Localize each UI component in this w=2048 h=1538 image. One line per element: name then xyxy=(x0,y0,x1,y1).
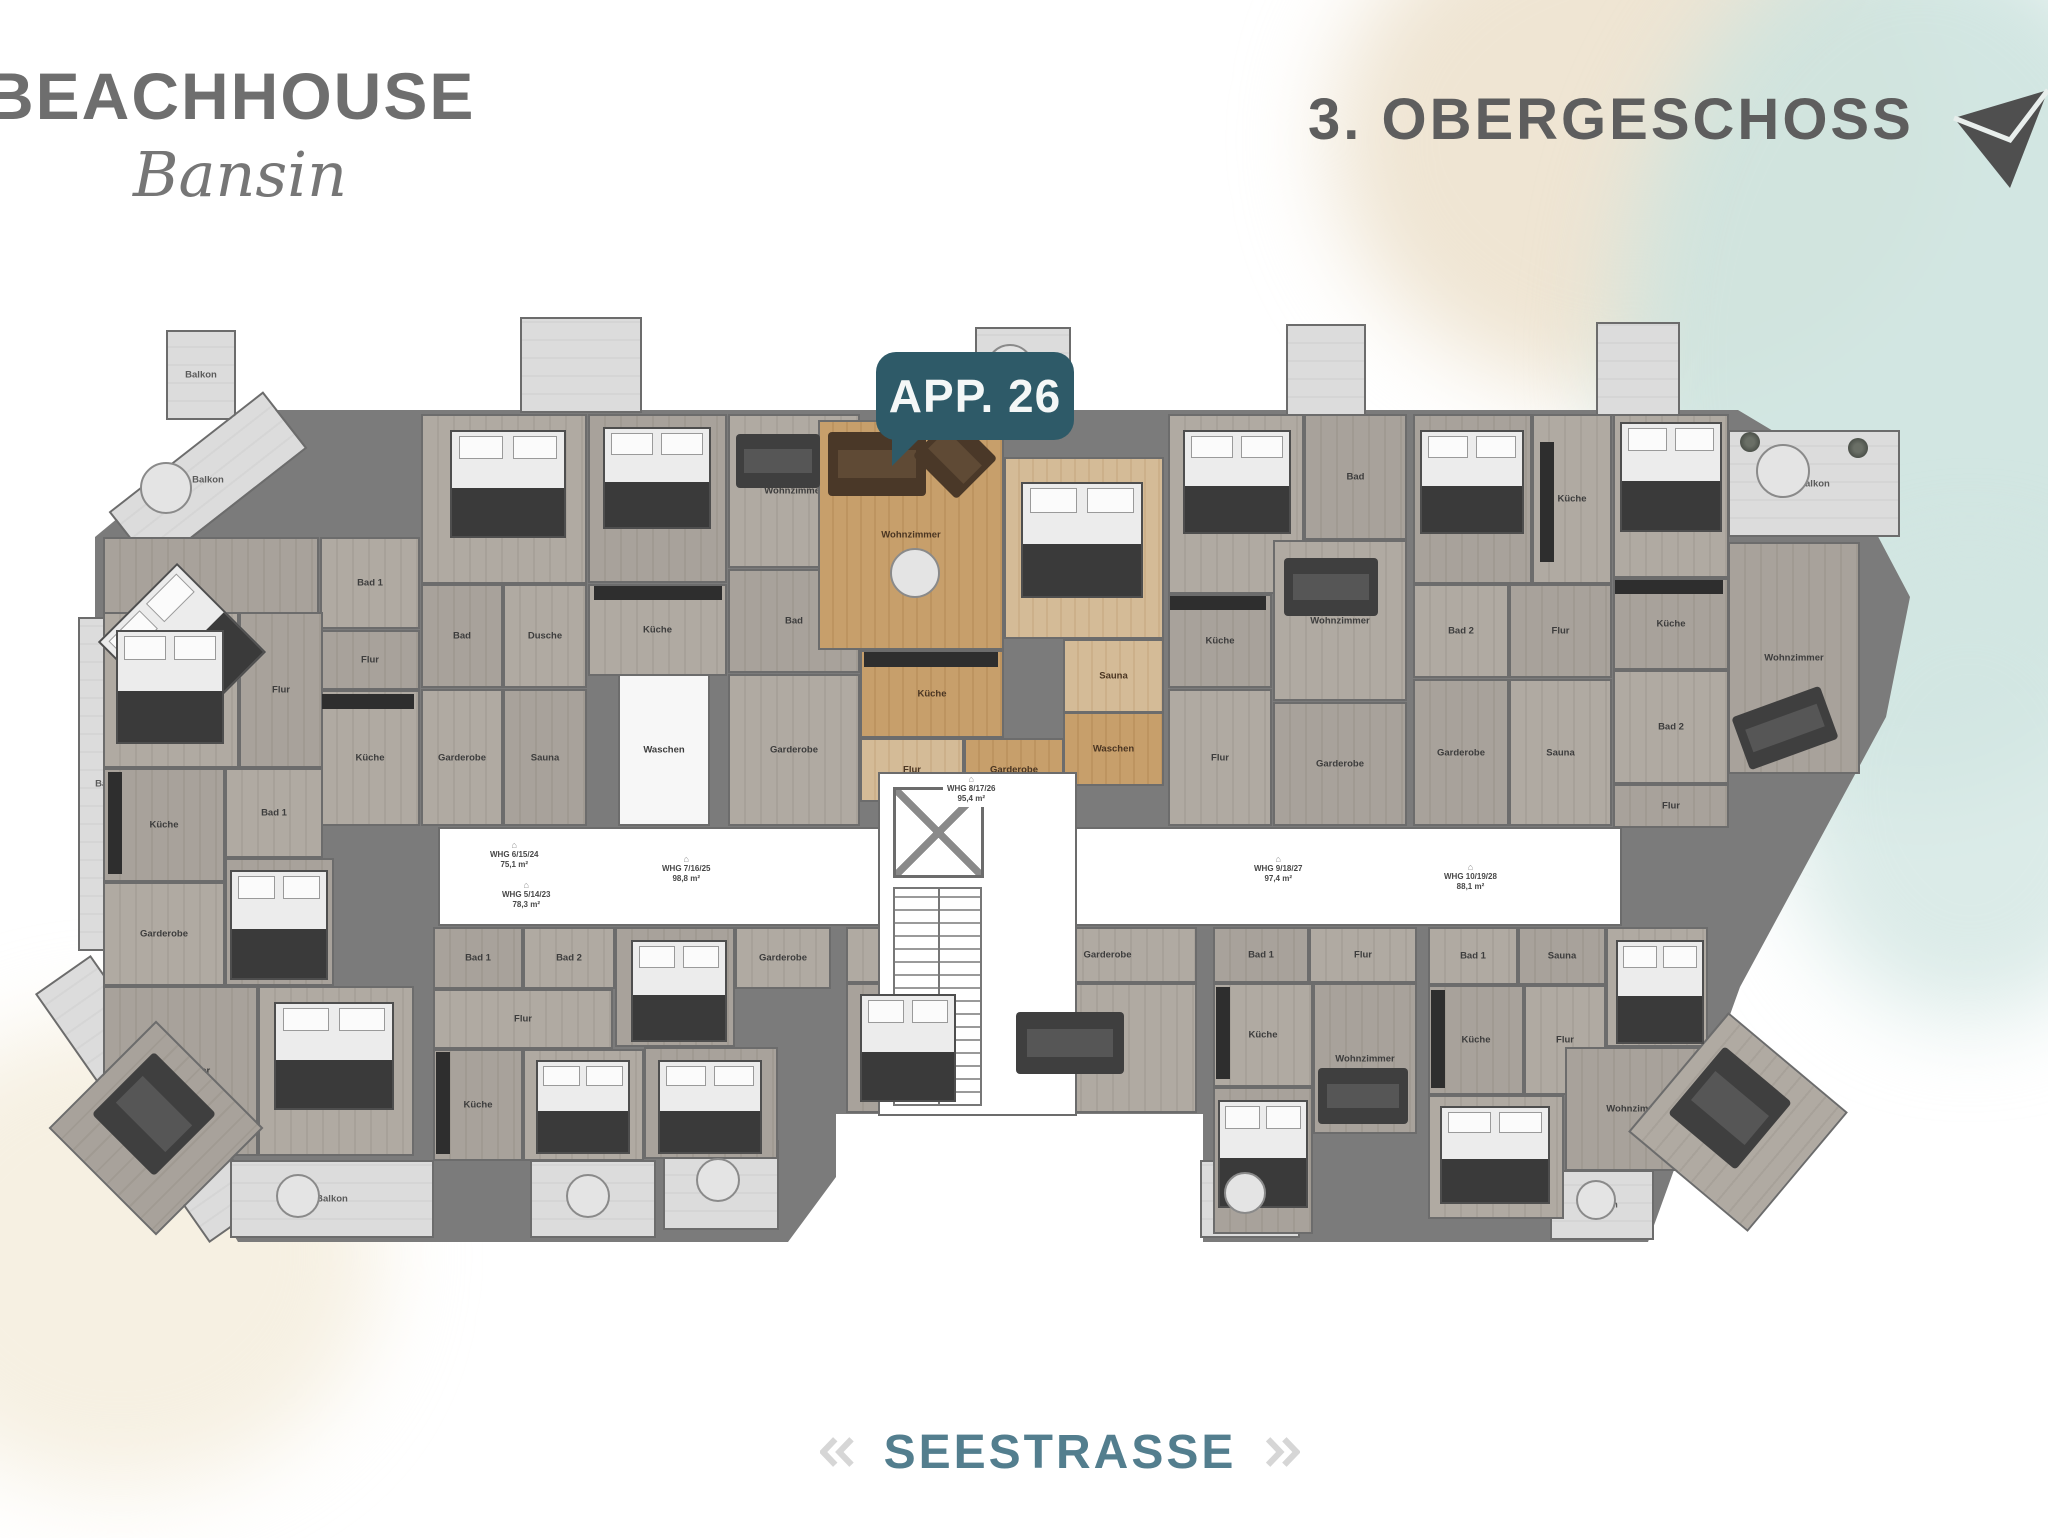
room-bad 2: Bad 2 xyxy=(523,927,615,989)
bed-part xyxy=(862,1052,954,1100)
bed-part xyxy=(1185,486,1289,532)
bed-part xyxy=(1191,436,1233,458)
bed-icon xyxy=(116,630,224,744)
bed-part xyxy=(666,1066,706,1086)
room-label: Küche xyxy=(590,625,725,636)
sofa-icon xyxy=(1318,1068,1408,1124)
brand-logo-sub: Bansin xyxy=(40,138,440,211)
room-sauna: Sauna xyxy=(1063,639,1164,713)
room-label: Küche xyxy=(322,753,418,764)
plant-icon xyxy=(1848,438,1868,458)
bed-icon xyxy=(1183,430,1291,534)
whg-area: 75,1 m² xyxy=(500,860,528,869)
bed-part xyxy=(714,1066,754,1086)
room-label: Küche xyxy=(1170,636,1270,647)
whg-label: ⌂WHG 9/18/2797,4 m² xyxy=(1250,854,1306,887)
room-label: Flur xyxy=(1311,950,1415,961)
room-label: Sauna xyxy=(505,752,585,763)
room-label: Garderobe xyxy=(1275,759,1405,770)
bed-icon xyxy=(230,870,328,980)
round-table-icon xyxy=(890,548,940,598)
badge-pointer xyxy=(892,436,922,466)
sofa-icon xyxy=(1016,1012,1124,1074)
bed-part xyxy=(283,1008,329,1031)
room-label: Bad 2 xyxy=(1415,626,1507,637)
kitchen-counter-icon xyxy=(108,772,122,874)
bed-part xyxy=(118,691,222,742)
kitchen-counter-icon xyxy=(1170,596,1266,610)
room-flur: Flur xyxy=(320,630,420,690)
plant-icon xyxy=(1740,432,1760,452)
brand-logo: BEACHHOUSE xyxy=(0,58,475,134)
roof-icon: ⌂ xyxy=(502,881,550,890)
room-label: Bad xyxy=(423,631,501,642)
room-label: Bad 1 xyxy=(1215,950,1307,961)
room-garderobe: Garderobe xyxy=(728,674,860,826)
street-label-bottom-group: SEESTRASSE xyxy=(820,1412,1300,1492)
whg-number: WHG 5/14/23 xyxy=(502,890,550,899)
bed-part xyxy=(605,482,709,527)
room-sauna: Sauna xyxy=(503,689,587,826)
bed-part xyxy=(1663,946,1697,968)
bed-part xyxy=(276,1060,392,1108)
bed-part xyxy=(868,1000,905,1023)
room-sauna: Sauna xyxy=(1518,927,1606,985)
kitchen-counter-icon xyxy=(1540,442,1554,562)
room-label: Flur xyxy=(241,685,321,696)
kitchen-counter-icon xyxy=(1431,990,1445,1088)
room-balkon: Balkon xyxy=(230,1160,434,1238)
room-label: Balkon xyxy=(1730,478,1898,489)
round-table-icon xyxy=(1756,444,1810,498)
whg-area: 98,8 m² xyxy=(672,874,700,883)
bed-part xyxy=(124,636,166,660)
room-label: Wohnzimmer xyxy=(1315,1053,1415,1064)
room-label: Sauna xyxy=(1520,951,1604,962)
room-label: Flur xyxy=(1526,1035,1604,1046)
bed-part xyxy=(1087,488,1134,512)
room-waschen: Waschen xyxy=(1063,712,1164,786)
room-flur: Flur xyxy=(1509,584,1612,678)
bed-part xyxy=(1499,1112,1541,1133)
room-label: Küche xyxy=(862,689,1002,700)
room-bad 1: Bad 1 xyxy=(433,927,523,989)
room-bad 2: Bad 2 xyxy=(1613,670,1729,784)
bed-icon xyxy=(860,994,956,1102)
bed-part xyxy=(1225,1106,1260,1129)
bed-icon xyxy=(450,430,566,538)
bed-part xyxy=(1030,488,1077,512)
bed-part xyxy=(1622,481,1720,530)
bed-part xyxy=(633,995,725,1040)
room-light xyxy=(1596,322,1680,416)
round-table-icon xyxy=(566,1174,610,1218)
bed-part xyxy=(538,1111,628,1152)
room-label: Flur xyxy=(1511,626,1610,637)
round-table-icon xyxy=(1576,1180,1616,1220)
round-table-icon xyxy=(1224,1172,1266,1214)
room-flur: Flur xyxy=(1309,927,1417,983)
sofa-icon xyxy=(1284,558,1378,616)
room-label: Balkon xyxy=(232,1194,432,1205)
bed-part xyxy=(339,1008,385,1031)
roof-icon: ⌂ xyxy=(1444,863,1497,872)
room-label: Wohnzimmer xyxy=(820,530,1002,541)
roof-icon: ⌂ xyxy=(662,855,710,864)
room-bad: Bad xyxy=(1304,414,1407,540)
room-bad 1: Bad 1 xyxy=(225,768,323,858)
room-küche: Küche xyxy=(320,690,420,826)
whg-area: 95,4 m² xyxy=(957,794,985,803)
bed-part xyxy=(586,1066,622,1086)
bed-part xyxy=(1476,436,1516,458)
round-table-icon xyxy=(276,1174,320,1218)
bed-part xyxy=(1623,946,1657,968)
bed-part xyxy=(513,436,558,459)
room-label: Bad 1 xyxy=(322,578,418,589)
bed-icon xyxy=(1616,940,1704,1044)
whg-label: ⌂WHG 5/14/2378,3 m² xyxy=(498,880,554,913)
bed-icon xyxy=(1620,422,1722,532)
bed-part xyxy=(660,1111,760,1152)
chevron-down-icon: « xyxy=(0,923,7,947)
kitchen-counter-icon xyxy=(864,652,998,667)
bed-icon xyxy=(1420,430,1524,534)
bed-icon xyxy=(658,1060,762,1154)
room-label: Flur xyxy=(322,655,418,666)
bed-part xyxy=(459,436,504,459)
bed-part xyxy=(1241,436,1283,458)
room-sauna: Sauna xyxy=(1509,679,1612,826)
room-dusche: Dusche xyxy=(503,584,587,688)
room-label: Flur xyxy=(435,1014,611,1025)
room-label: Dusche xyxy=(505,631,585,642)
room-flur: Flur xyxy=(239,612,323,768)
room-garderobe: Garderobe xyxy=(103,882,225,986)
room-garderobe: Garderobe xyxy=(1413,679,1509,826)
bed-part xyxy=(1422,486,1522,532)
room-bad 1: Bad 1 xyxy=(1213,927,1309,983)
room-garderobe: Garderobe xyxy=(735,927,831,989)
room-flur: Flur xyxy=(433,989,613,1049)
room-bad 1: Bad 1 xyxy=(1428,927,1518,985)
room-label: Garderobe xyxy=(730,745,858,756)
bed-part xyxy=(543,1066,579,1086)
north-arrow-icon xyxy=(1952,88,2048,193)
chevron-up-icon: « xyxy=(0,465,7,489)
bed-part xyxy=(232,929,326,978)
whg-number: WHG 8/17/26 xyxy=(947,784,995,793)
bed-part xyxy=(238,876,276,899)
whg-label: ⌂WHG 10/19/2888,1 m² xyxy=(1440,862,1501,895)
roof-icon: ⌂ xyxy=(490,841,538,850)
kitchen-counter-icon xyxy=(594,586,722,600)
sofa-icon xyxy=(736,434,820,488)
round-table-icon xyxy=(696,1158,740,1202)
room-label: Bad 1 xyxy=(1430,951,1516,962)
whg-number: WHG 7/16/25 xyxy=(662,864,710,873)
kitchen-counter-icon xyxy=(322,694,414,709)
bed-icon xyxy=(1440,1106,1550,1204)
whg-area: 97,4 m² xyxy=(1264,874,1292,883)
room-label: Flur xyxy=(1170,752,1270,763)
chevron-left-icon xyxy=(820,1423,858,1481)
room-label: Garderobe xyxy=(737,953,829,964)
room-garderobe: Garderobe xyxy=(1273,702,1407,826)
whg-label: ⌂WHG 8/17/2695,4 m² xyxy=(943,774,999,807)
whg-area: 78,3 m² xyxy=(512,900,540,909)
roof-icon: ⌂ xyxy=(947,775,995,784)
room-bad: Bad xyxy=(421,584,503,688)
room-label: Bad 1 xyxy=(227,808,321,819)
room-light xyxy=(1286,324,1366,416)
room-label: Sauna xyxy=(1065,671,1162,682)
floorplan: BalkonBalkonBalkonBalkonBalkonBalkonBalk… xyxy=(88,402,1918,1247)
room-label: Wohnzimmer xyxy=(1730,653,1858,664)
roof-icon: ⌂ xyxy=(1254,855,1302,864)
bed-part xyxy=(174,636,216,660)
whg-label: ⌂WHG 6/15/2475,1 m² xyxy=(486,840,542,873)
kitchen-counter-icon xyxy=(1615,580,1723,594)
bed-part xyxy=(611,433,653,455)
room-garderobe: Garderobe xyxy=(421,689,503,826)
room-flur: Flur xyxy=(1168,689,1272,826)
chevron-right-icon xyxy=(1262,1423,1300,1481)
room-label: Bad xyxy=(1306,472,1405,483)
whg-label: ⌂WHG 7/16/2598,8 m² xyxy=(658,854,714,887)
bed-part xyxy=(1266,1106,1301,1129)
bed-icon xyxy=(1021,482,1143,598)
bed-part xyxy=(1628,428,1667,451)
kitchen-counter-icon xyxy=(436,1052,450,1154)
bed-part xyxy=(1675,428,1714,451)
kitchen-counter-icon xyxy=(1216,987,1230,1079)
room-flur: Flur xyxy=(1613,784,1729,828)
room-label: Flur xyxy=(1615,801,1727,812)
room-bad 1: Bad 1 xyxy=(320,537,420,629)
round-table-icon xyxy=(140,462,192,514)
whg-number: WHG 6/15/24 xyxy=(490,850,538,859)
bed-part xyxy=(639,946,676,968)
whg-number: WHG 9/18/27 xyxy=(1254,864,1302,873)
room-label: Bad 2 xyxy=(525,953,613,964)
street-label-bottom: SEESTRASSE xyxy=(884,1425,1237,1480)
room-label: Bad 2 xyxy=(1615,722,1727,733)
floor-title: 3. OBERGESCHOSS xyxy=(1308,86,1914,153)
room-label: Küche xyxy=(1615,619,1727,630)
whg-area: 88,1 m² xyxy=(1457,882,1485,891)
street-label-left: BERGSTRASSE xyxy=(0,540,8,924)
bed-part xyxy=(683,946,720,968)
bed-part xyxy=(912,1000,949,1023)
room-waschen: Waschen xyxy=(618,674,710,826)
room-label: Balkon xyxy=(168,370,234,381)
room-label: Bad 1 xyxy=(435,953,521,964)
apartment-badge[interactable]: APP. 26 xyxy=(876,352,1074,440)
bed-icon xyxy=(631,940,727,1042)
bed-part xyxy=(1448,1112,1490,1133)
room-label: Küche xyxy=(105,820,223,831)
bed-icon xyxy=(274,1002,394,1110)
room-bad 2: Bad 2 xyxy=(1413,584,1509,678)
room-label: Waschen xyxy=(1065,744,1162,755)
bed-part xyxy=(1618,996,1702,1042)
bed-part xyxy=(452,488,564,536)
room-label: Wohnzimmer xyxy=(1275,615,1405,626)
bed-part xyxy=(1442,1159,1548,1202)
room-label: Waschen xyxy=(620,745,708,756)
bed-part xyxy=(283,876,321,899)
bed-part xyxy=(661,433,703,455)
room-label: Garderobe xyxy=(1415,747,1507,758)
bed-icon xyxy=(536,1060,630,1154)
room-label: Garderobe xyxy=(423,752,501,763)
whg-number: WHG 10/19/28 xyxy=(1444,872,1497,881)
bed-icon xyxy=(603,427,711,529)
room-label: Garderobe xyxy=(105,929,223,940)
room-balkon: Balkon xyxy=(166,330,236,420)
bed-part xyxy=(1428,436,1468,458)
page: BEACHHOUSE Bansin 3. OBERGESCHOSS BERGST… xyxy=(0,0,2048,1538)
room-label: Sauna xyxy=(1511,747,1610,758)
bed-part xyxy=(1023,544,1141,596)
room-light xyxy=(520,317,642,413)
